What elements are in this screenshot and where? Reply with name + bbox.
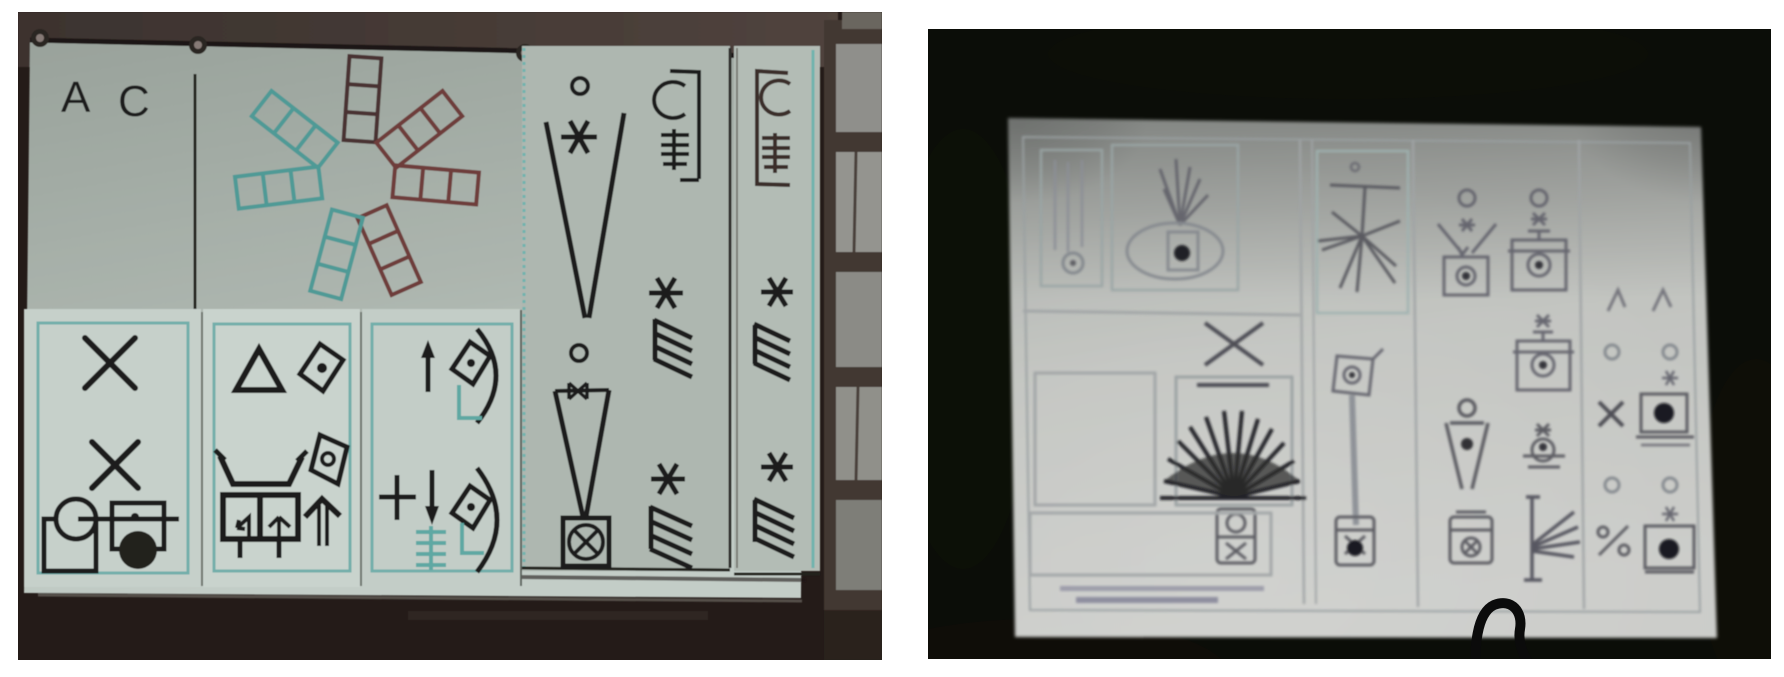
svg-text:C: C [118, 77, 150, 126]
svg-text:A: A [61, 73, 91, 122]
